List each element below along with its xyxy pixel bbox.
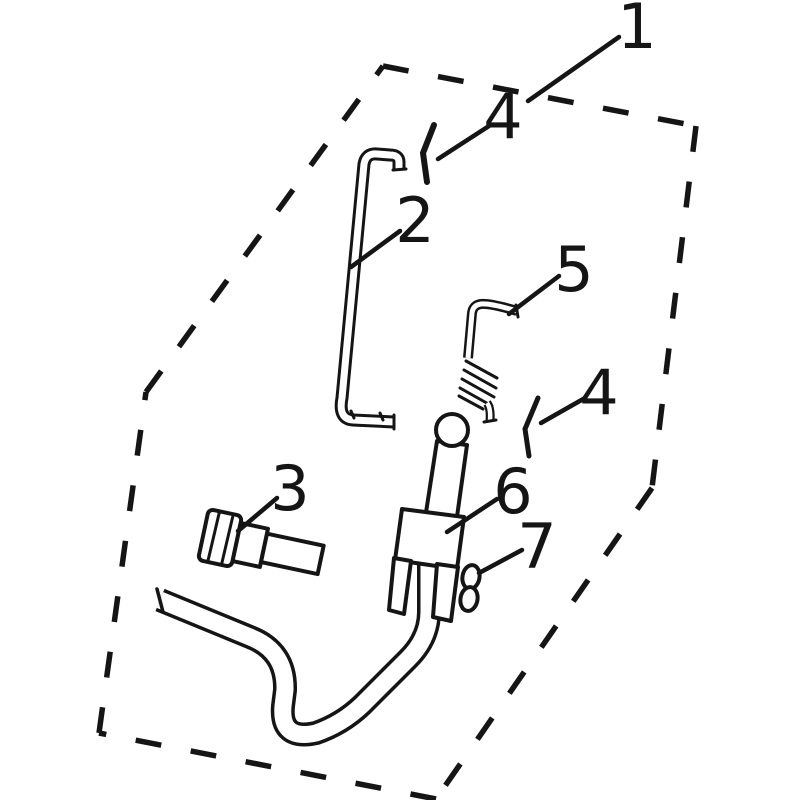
leader-line-4-upper bbox=[438, 126, 489, 159]
leader-line-5 bbox=[509, 276, 559, 314]
bent-handle-pipe bbox=[157, 558, 429, 734]
tension-spring-hook bbox=[459, 304, 518, 422]
boundary-edge-left-lower bbox=[99, 392, 146, 733]
clamp-leg-right bbox=[433, 564, 458, 621]
callout-label-4-lower: 4 bbox=[579, 356, 618, 429]
boundary-edge-bottom bbox=[99, 733, 436, 799]
callout-label-2: 2 bbox=[395, 184, 434, 257]
callout-label-3: 3 bbox=[270, 452, 309, 525]
spring-coil-turn-3 bbox=[462, 379, 494, 397]
callout-label-1: 1 bbox=[617, 0, 656, 63]
boundary-edge-top bbox=[383, 66, 696, 126]
leader-line-7 bbox=[479, 550, 522, 573]
dashed-panel-outline bbox=[99, 66, 696, 799]
callout-label-4-upper: 4 bbox=[483, 80, 522, 153]
parts-diagram-canvas: 1 4 2 5 4 3 6 7 bbox=[0, 0, 800, 800]
callout-labels: 1 4 2 5 4 3 6 7 bbox=[270, 0, 656, 583]
tube-end-cap bbox=[436, 414, 468, 446]
cotter-pin-lower bbox=[525, 398, 538, 456]
clamp-leg-left bbox=[389, 558, 411, 614]
cotter-pin-upper bbox=[423, 125, 434, 182]
rod-hook-end-cut bbox=[393, 169, 406, 170]
callout-label-7: 7 bbox=[517, 510, 556, 583]
clip-loop-lower bbox=[459, 586, 480, 613]
spring-tail-end-cut bbox=[484, 420, 496, 422]
spring-coil-turn-2 bbox=[464, 370, 496, 388]
leader-line-1 bbox=[528, 37, 619, 101]
boundary-edge-right-upper bbox=[652, 126, 696, 488]
callout-label-5: 5 bbox=[554, 233, 593, 306]
bolt-shank bbox=[261, 534, 324, 574]
